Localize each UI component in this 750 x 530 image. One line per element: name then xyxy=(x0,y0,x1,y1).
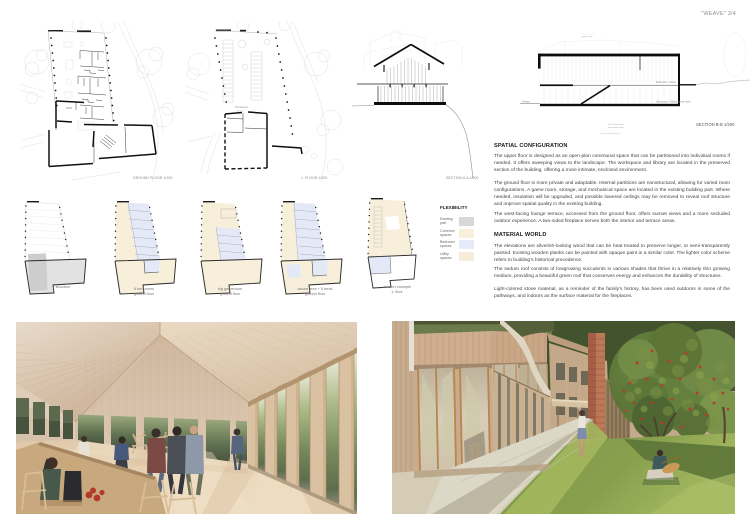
svg-text:Workspace: Workspace xyxy=(235,105,248,109)
svg-text:30 m wheelchair: 30 m wheelchair xyxy=(608,123,624,126)
svg-text:+ library: + library xyxy=(235,109,244,112)
svg-text:Bedrooms + Wood: Bedrooms + Wood xyxy=(656,81,676,84)
svg-text:existing building part: existing building part xyxy=(600,132,620,135)
svg-text:Terrace: Terrace xyxy=(522,100,531,103)
svg-text:green roof: green roof xyxy=(582,35,592,38)
svg-text:Gameroom + Multipurpose room: Gameroom + Multipurpose room xyxy=(656,101,690,104)
svg-text:accessible ramp: accessible ramp xyxy=(608,126,625,129)
